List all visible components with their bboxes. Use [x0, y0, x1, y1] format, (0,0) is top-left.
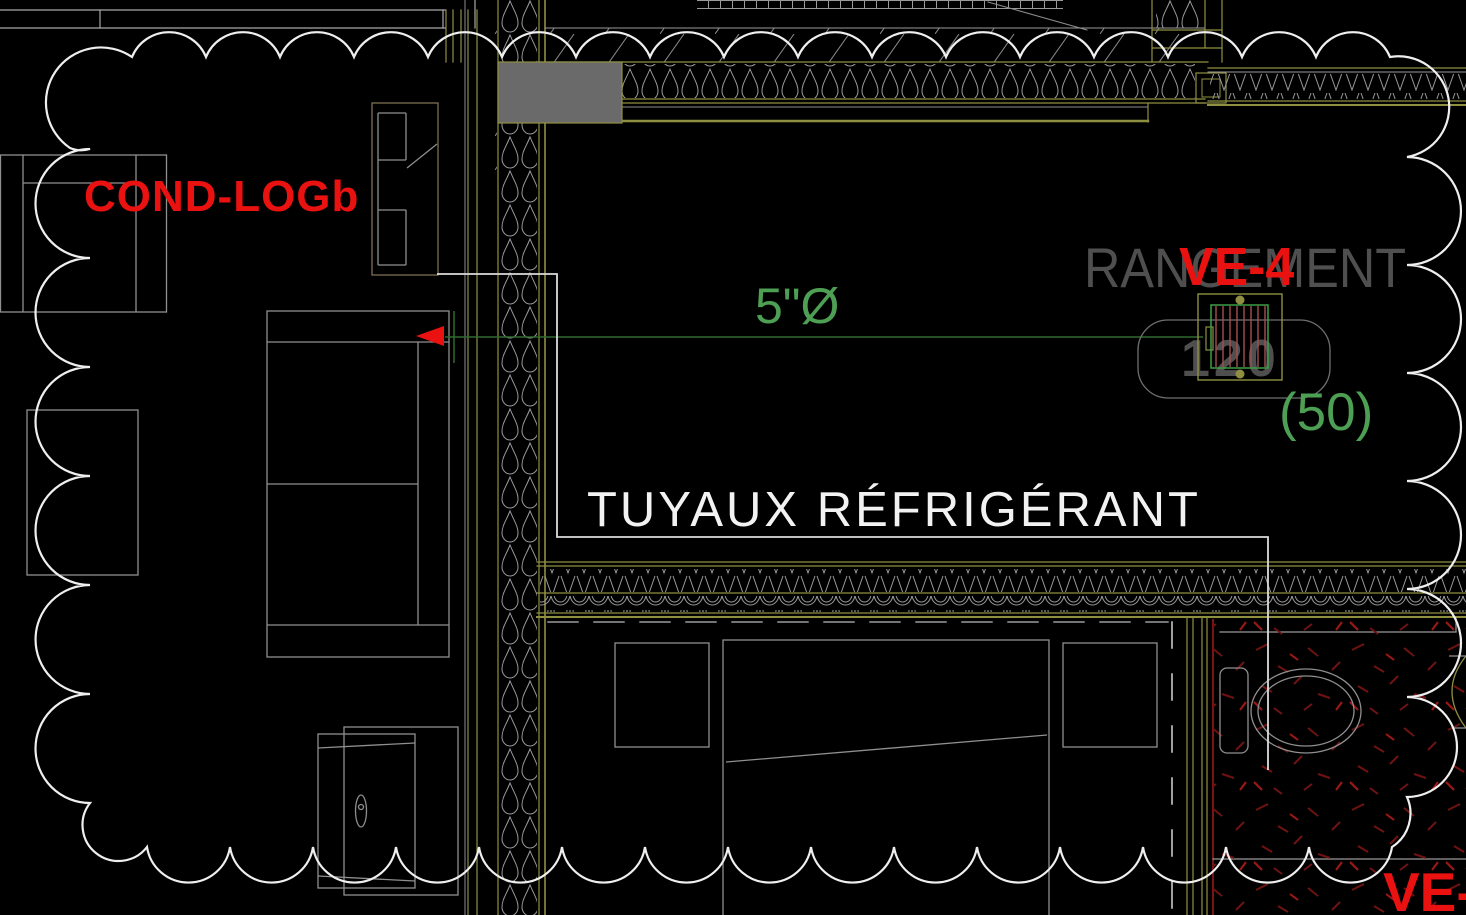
pipe-diameter-label: 5"Ø — [755, 281, 839, 331]
floor-plan-drawing — [0, 0, 1466, 915]
cad-floor-plan-viewport: RANGEMENT 120 COND-LOGb VE-4 (50) 5"Ø TU… — [0, 0, 1466, 915]
top-wall — [537, 0, 1226, 122]
appliance-outline — [318, 727, 458, 895]
refrigerant-pipe-label: TUYAUX RÉFRIGÉRANT — [587, 486, 1201, 535]
lower-wall — [537, 562, 1466, 617]
condenser-tag-label: COND-LOGb — [84, 175, 359, 219]
bed-outline — [723, 640, 1049, 915]
side-table-outline — [27, 410, 138, 575]
top-left-wall — [0, 0, 475, 28]
nightstand-left — [615, 643, 709, 747]
wall-equipment-block — [498, 62, 622, 123]
diffuser-flow-label: (50) — [1279, 386, 1373, 439]
diffuser-tag-label: VE-4 — [1179, 240, 1294, 294]
sofa-outline — [267, 311, 449, 657]
corner-tag-label: VE- — [1383, 865, 1466, 915]
nightstand-right — [1063, 643, 1157, 747]
top-right-wall-band — [1208, 68, 1466, 105]
vertical-wall — [446, 0, 545, 915]
bathroom-partition-wall — [1187, 617, 1207, 915]
pipe-direction-arrow-icon — [416, 326, 444, 346]
tall-cabinet-outline — [372, 103, 438, 275]
